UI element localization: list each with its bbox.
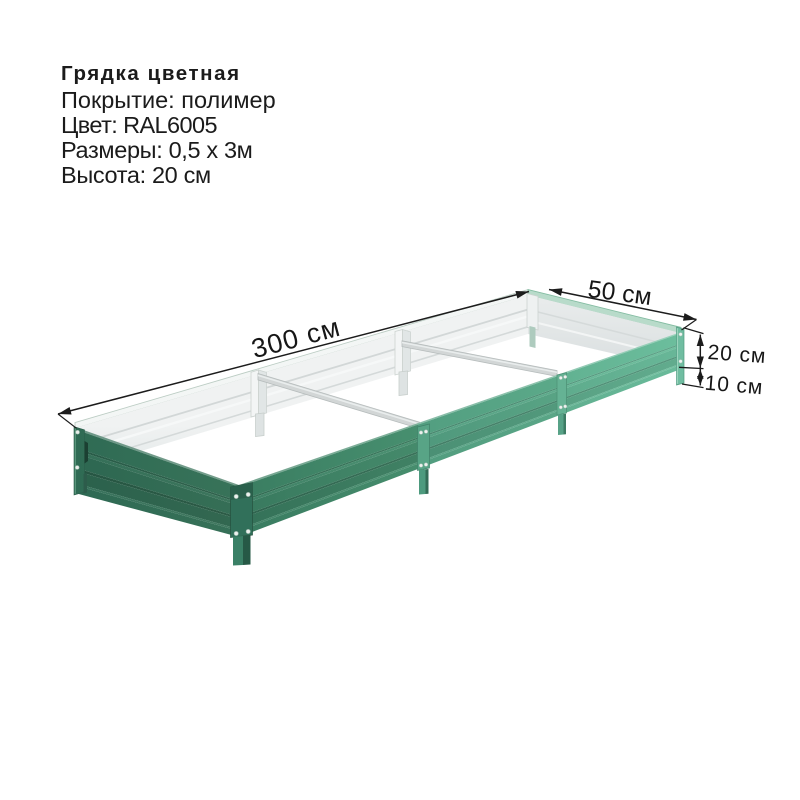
svg-text:20 см: 20 см xyxy=(707,341,767,368)
svg-text:10 см: 10 см xyxy=(704,372,764,400)
